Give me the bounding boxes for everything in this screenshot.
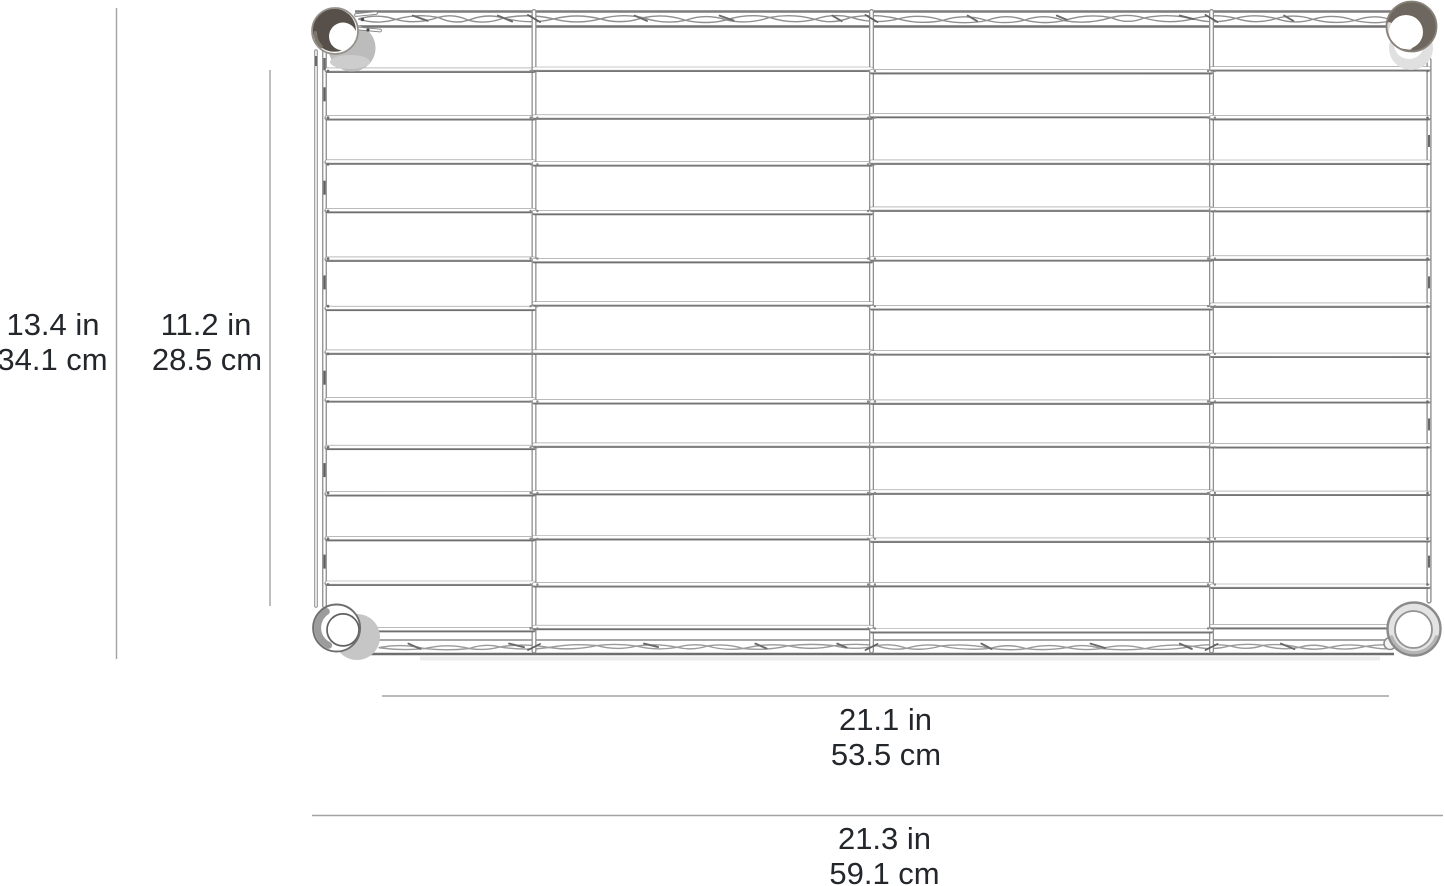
svg-text:13.4 in: 13.4 in bbox=[6, 307, 99, 342]
svg-text:59.1 cm: 59.1 cm bbox=[829, 856, 939, 886]
svg-text:21.3 in: 21.3 in bbox=[838, 821, 931, 856]
svg-text:21.1 in: 21.1 in bbox=[839, 702, 932, 737]
svg-text:11.2 in: 11.2 in bbox=[161, 307, 252, 342]
svg-text:34.1 cm: 34.1 cm bbox=[0, 342, 108, 377]
svg-text:53.5 cm: 53.5 cm bbox=[831, 737, 941, 772]
svg-text:28.5 cm: 28.5 cm bbox=[152, 342, 262, 377]
